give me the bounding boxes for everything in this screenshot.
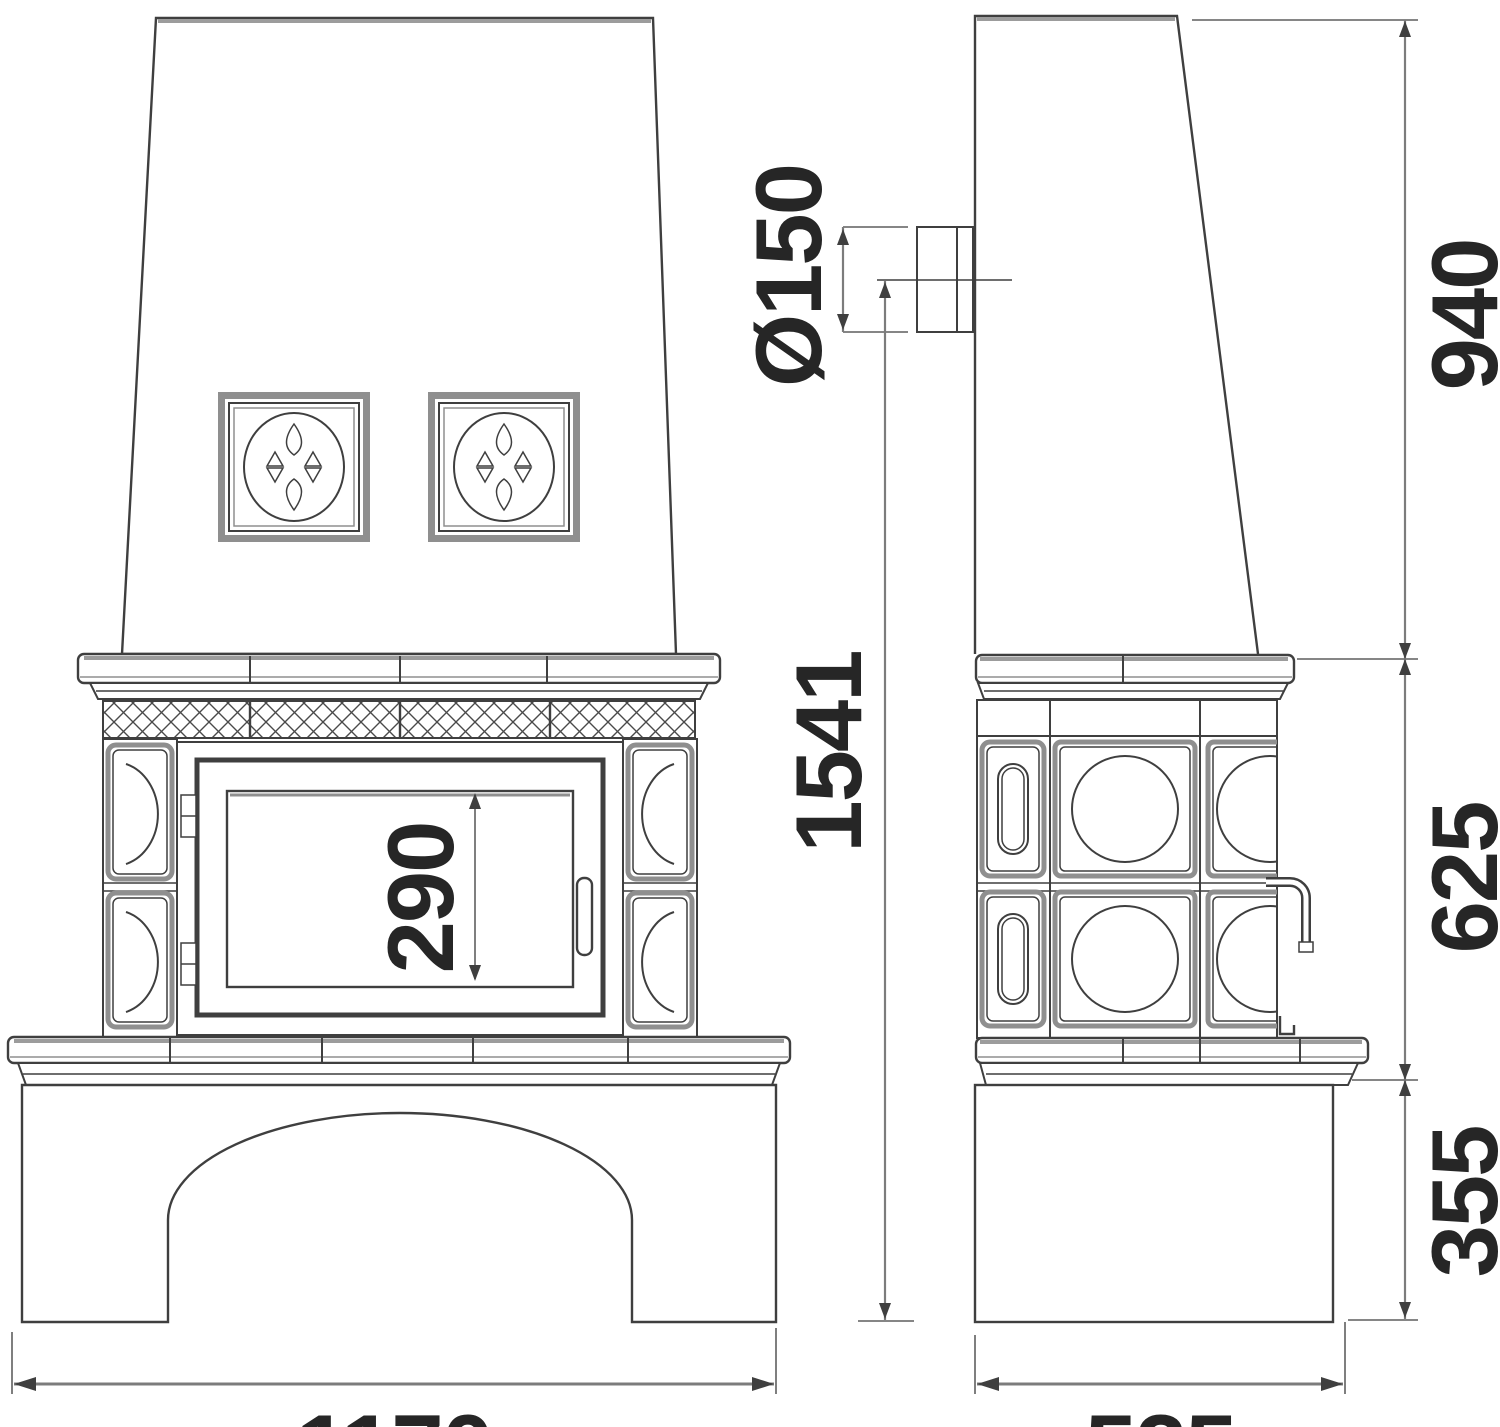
- dim-label-1170: 1170: [296, 1395, 492, 1427]
- side-bench-shelf: [976, 1038, 1368, 1085]
- dim-total-height: 1541: [776, 281, 914, 1321]
- front-hood: [122, 18, 676, 654]
- dim-label-290: 290: [368, 823, 473, 974]
- side-hood: [975, 16, 1258, 654]
- front-view: 290 1170: [8, 18, 790, 1427]
- front-base-arch: [22, 1085, 776, 1322]
- front-bench-shelf: [8, 1037, 790, 1085]
- dim-label-625: 625: [1412, 803, 1500, 954]
- front-mantel-shelf: [78, 654, 720, 699]
- dim-front-width: 1170: [12, 1328, 776, 1427]
- side-base: [975, 1085, 1333, 1322]
- stove-drawing-svg: 290 1170: [0, 0, 1500, 1427]
- side-mantel-shelf: [976, 655, 1294, 699]
- dim-label-525: 525: [1085, 1395, 1236, 1427]
- dim-side-depth: 525: [975, 1322, 1345, 1427]
- front-right-column: [623, 739, 697, 1037]
- rosette-tile-right: [432, 396, 577, 539]
- side-door-latch: [1280, 1016, 1294, 1034]
- rosette-tile-left: [222, 396, 367, 539]
- technical-drawing: 290 1170: [0, 0, 1500, 1427]
- dim-label-flue: Ø150: [736, 165, 841, 387]
- dim-label-355: 355: [1412, 1127, 1500, 1278]
- side-view: 525: [877, 16, 1368, 1427]
- side-frieze: [977, 700, 1277, 736]
- front-left-column: [103, 739, 177, 1037]
- dim-label-1541: 1541: [776, 651, 881, 852]
- front-lattice-frieze: [103, 701, 695, 738]
- dim-flue-diameter: Ø150: [736, 165, 908, 387]
- dim-label-940: 940: [1412, 240, 1500, 391]
